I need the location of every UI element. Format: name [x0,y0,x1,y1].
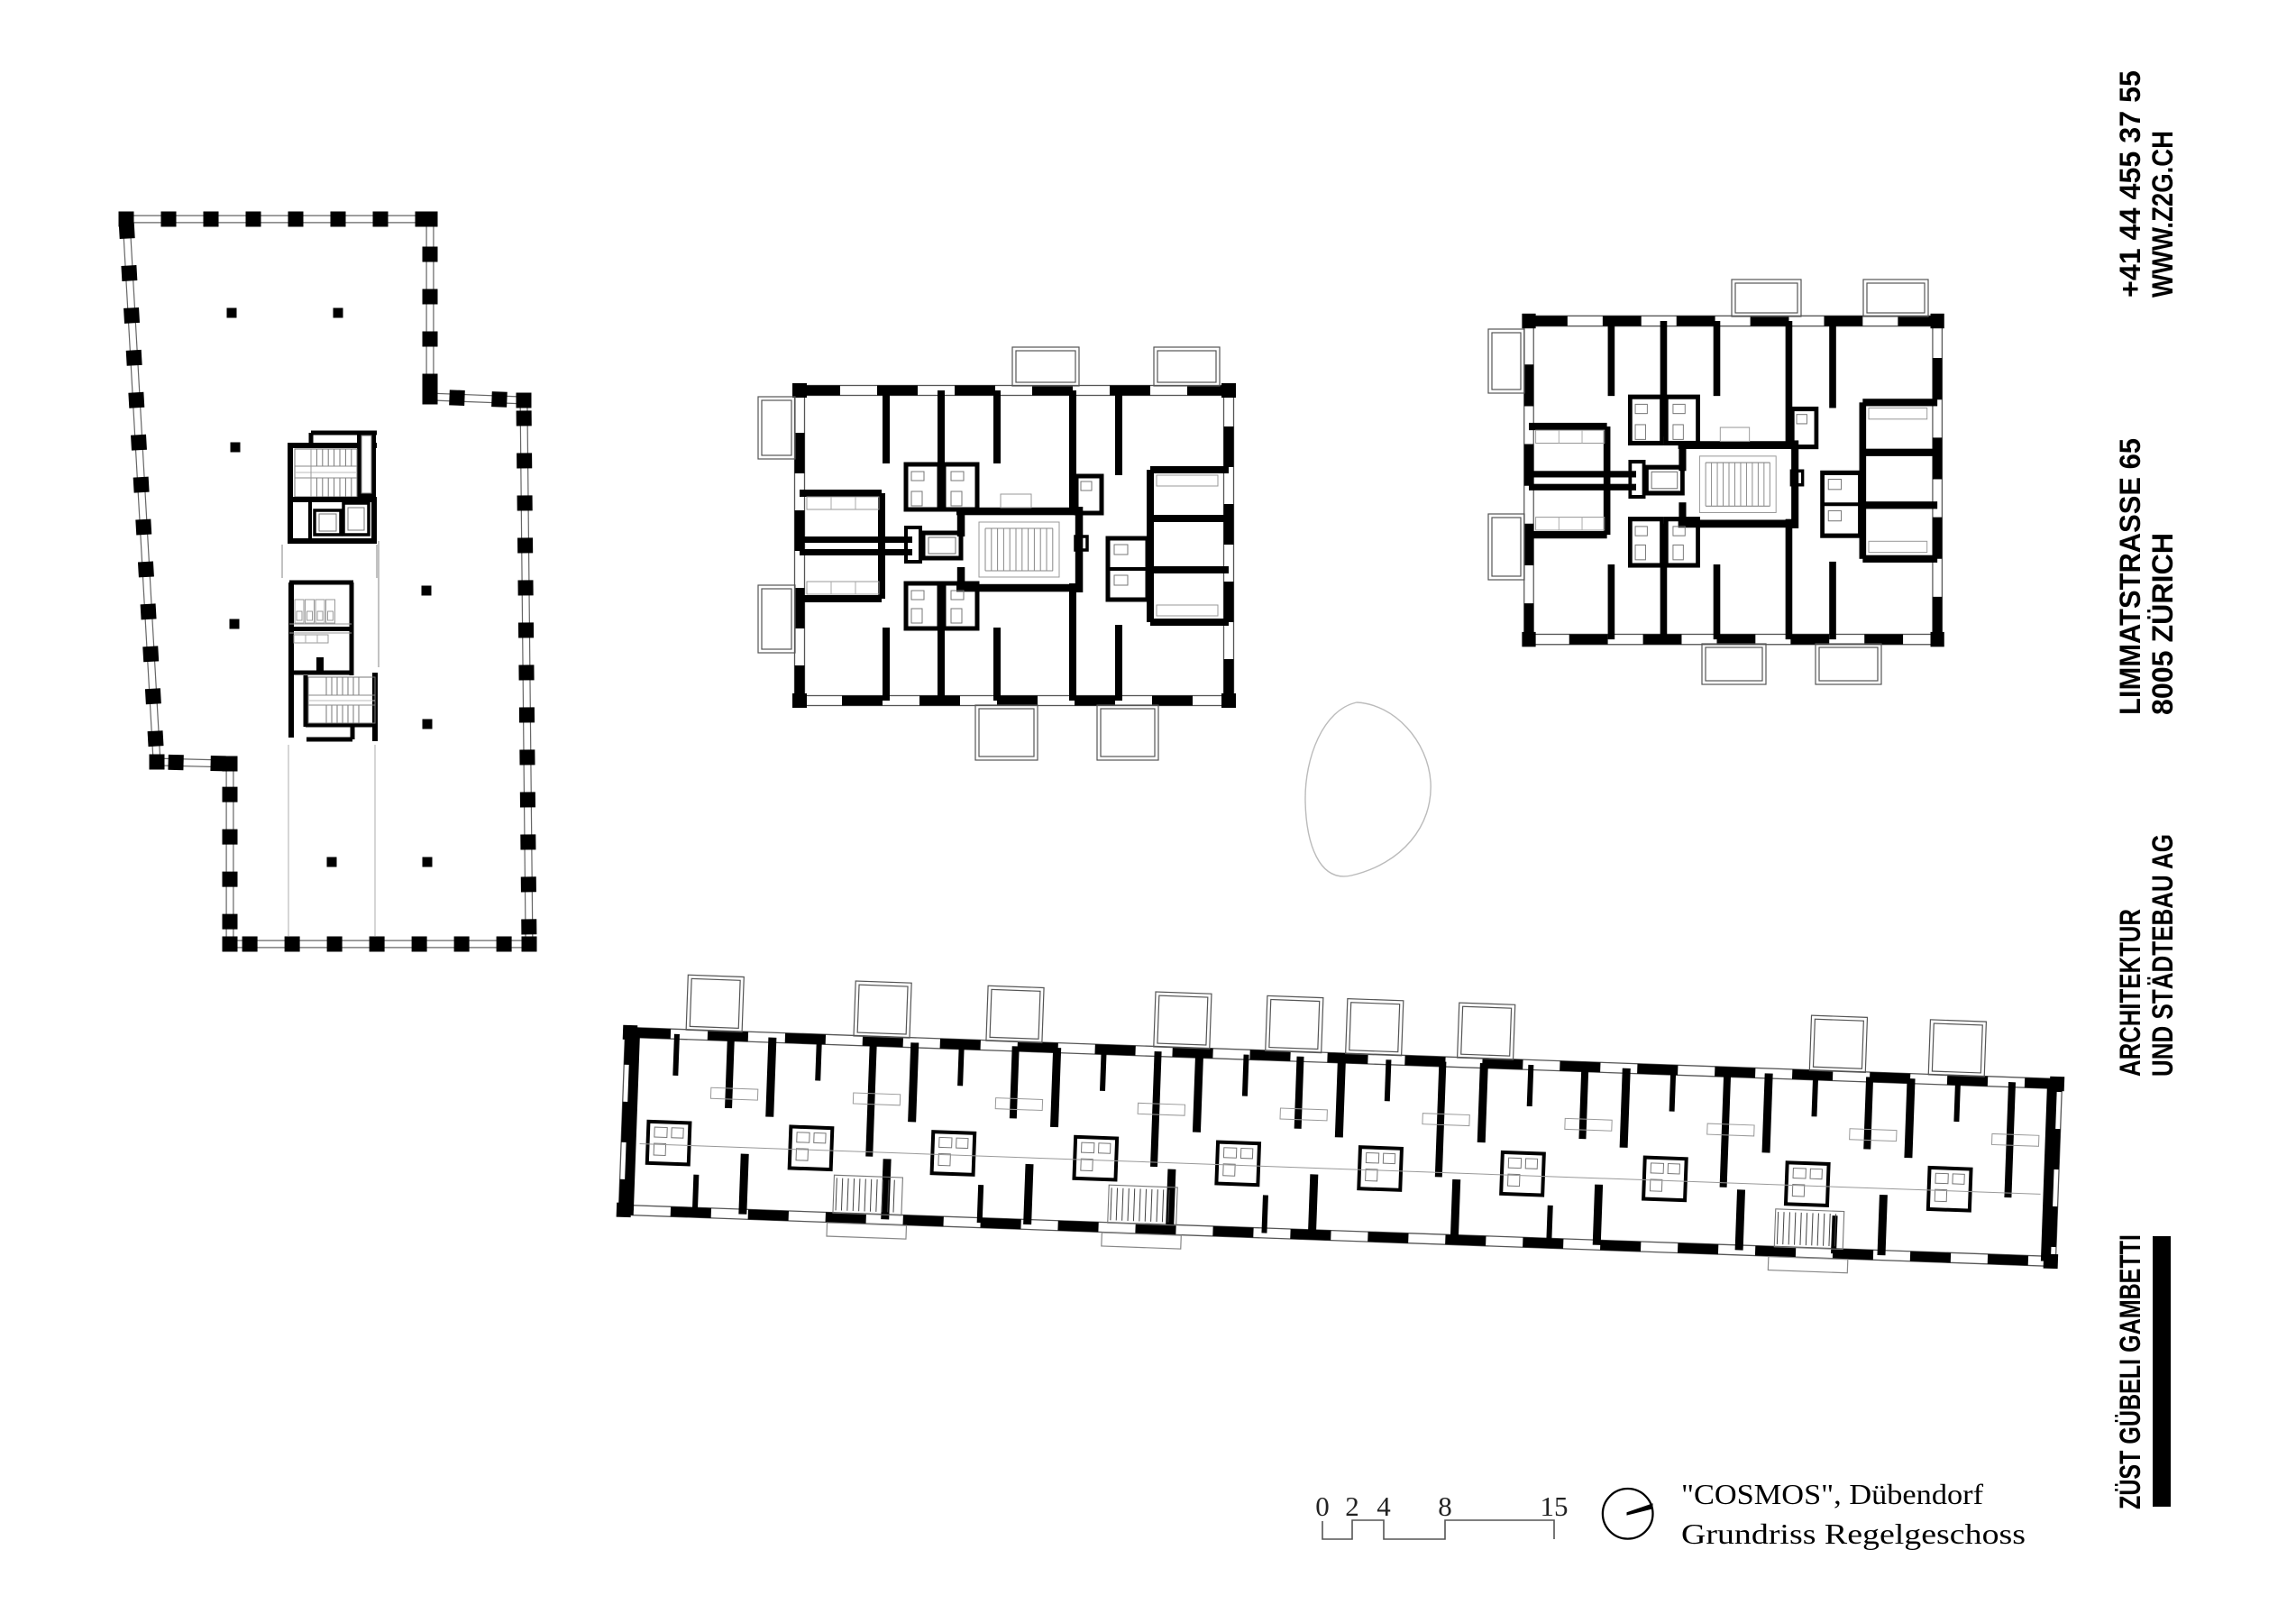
svg-text:0: 0 [1315,1490,1330,1522]
svg-text:ARCHITEKTUR: ARCHITEKTUR [2114,909,2146,1077]
svg-text:8: 8 [1438,1490,1452,1522]
svg-text:8005 ZÜRICH: 8005 ZÜRICH [2146,533,2179,715]
svg-text:WWW.Z2G.CH: WWW.Z2G.CH [2146,131,2179,298]
svg-text:UND STÄDTEBAU AG: UND STÄDTEBAU AG [2146,834,2179,1077]
svg-text:Grundriss Regelgeschoss: Grundriss Regelgeschoss [1681,1518,2026,1550]
svg-text:+41 44 455 37 55: +41 44 455 37 55 [2114,70,2146,298]
svg-text:15: 15 [1541,1490,1569,1522]
svg-text:LIMMATSTRASSE 65: LIMMATSTRASSE 65 [2114,438,2146,715]
svg-text:ZÜST GÜBELI GAMBETTI: ZÜST GÜBELI GAMBETTI [2114,1234,2146,1509]
svg-text:2: 2 [1345,1490,1359,1522]
svg-text:4: 4 [1377,1490,1391,1522]
svg-text:"COSMOS", Dübendorf: "COSMOS", Dübendorf [1681,1478,1983,1510]
